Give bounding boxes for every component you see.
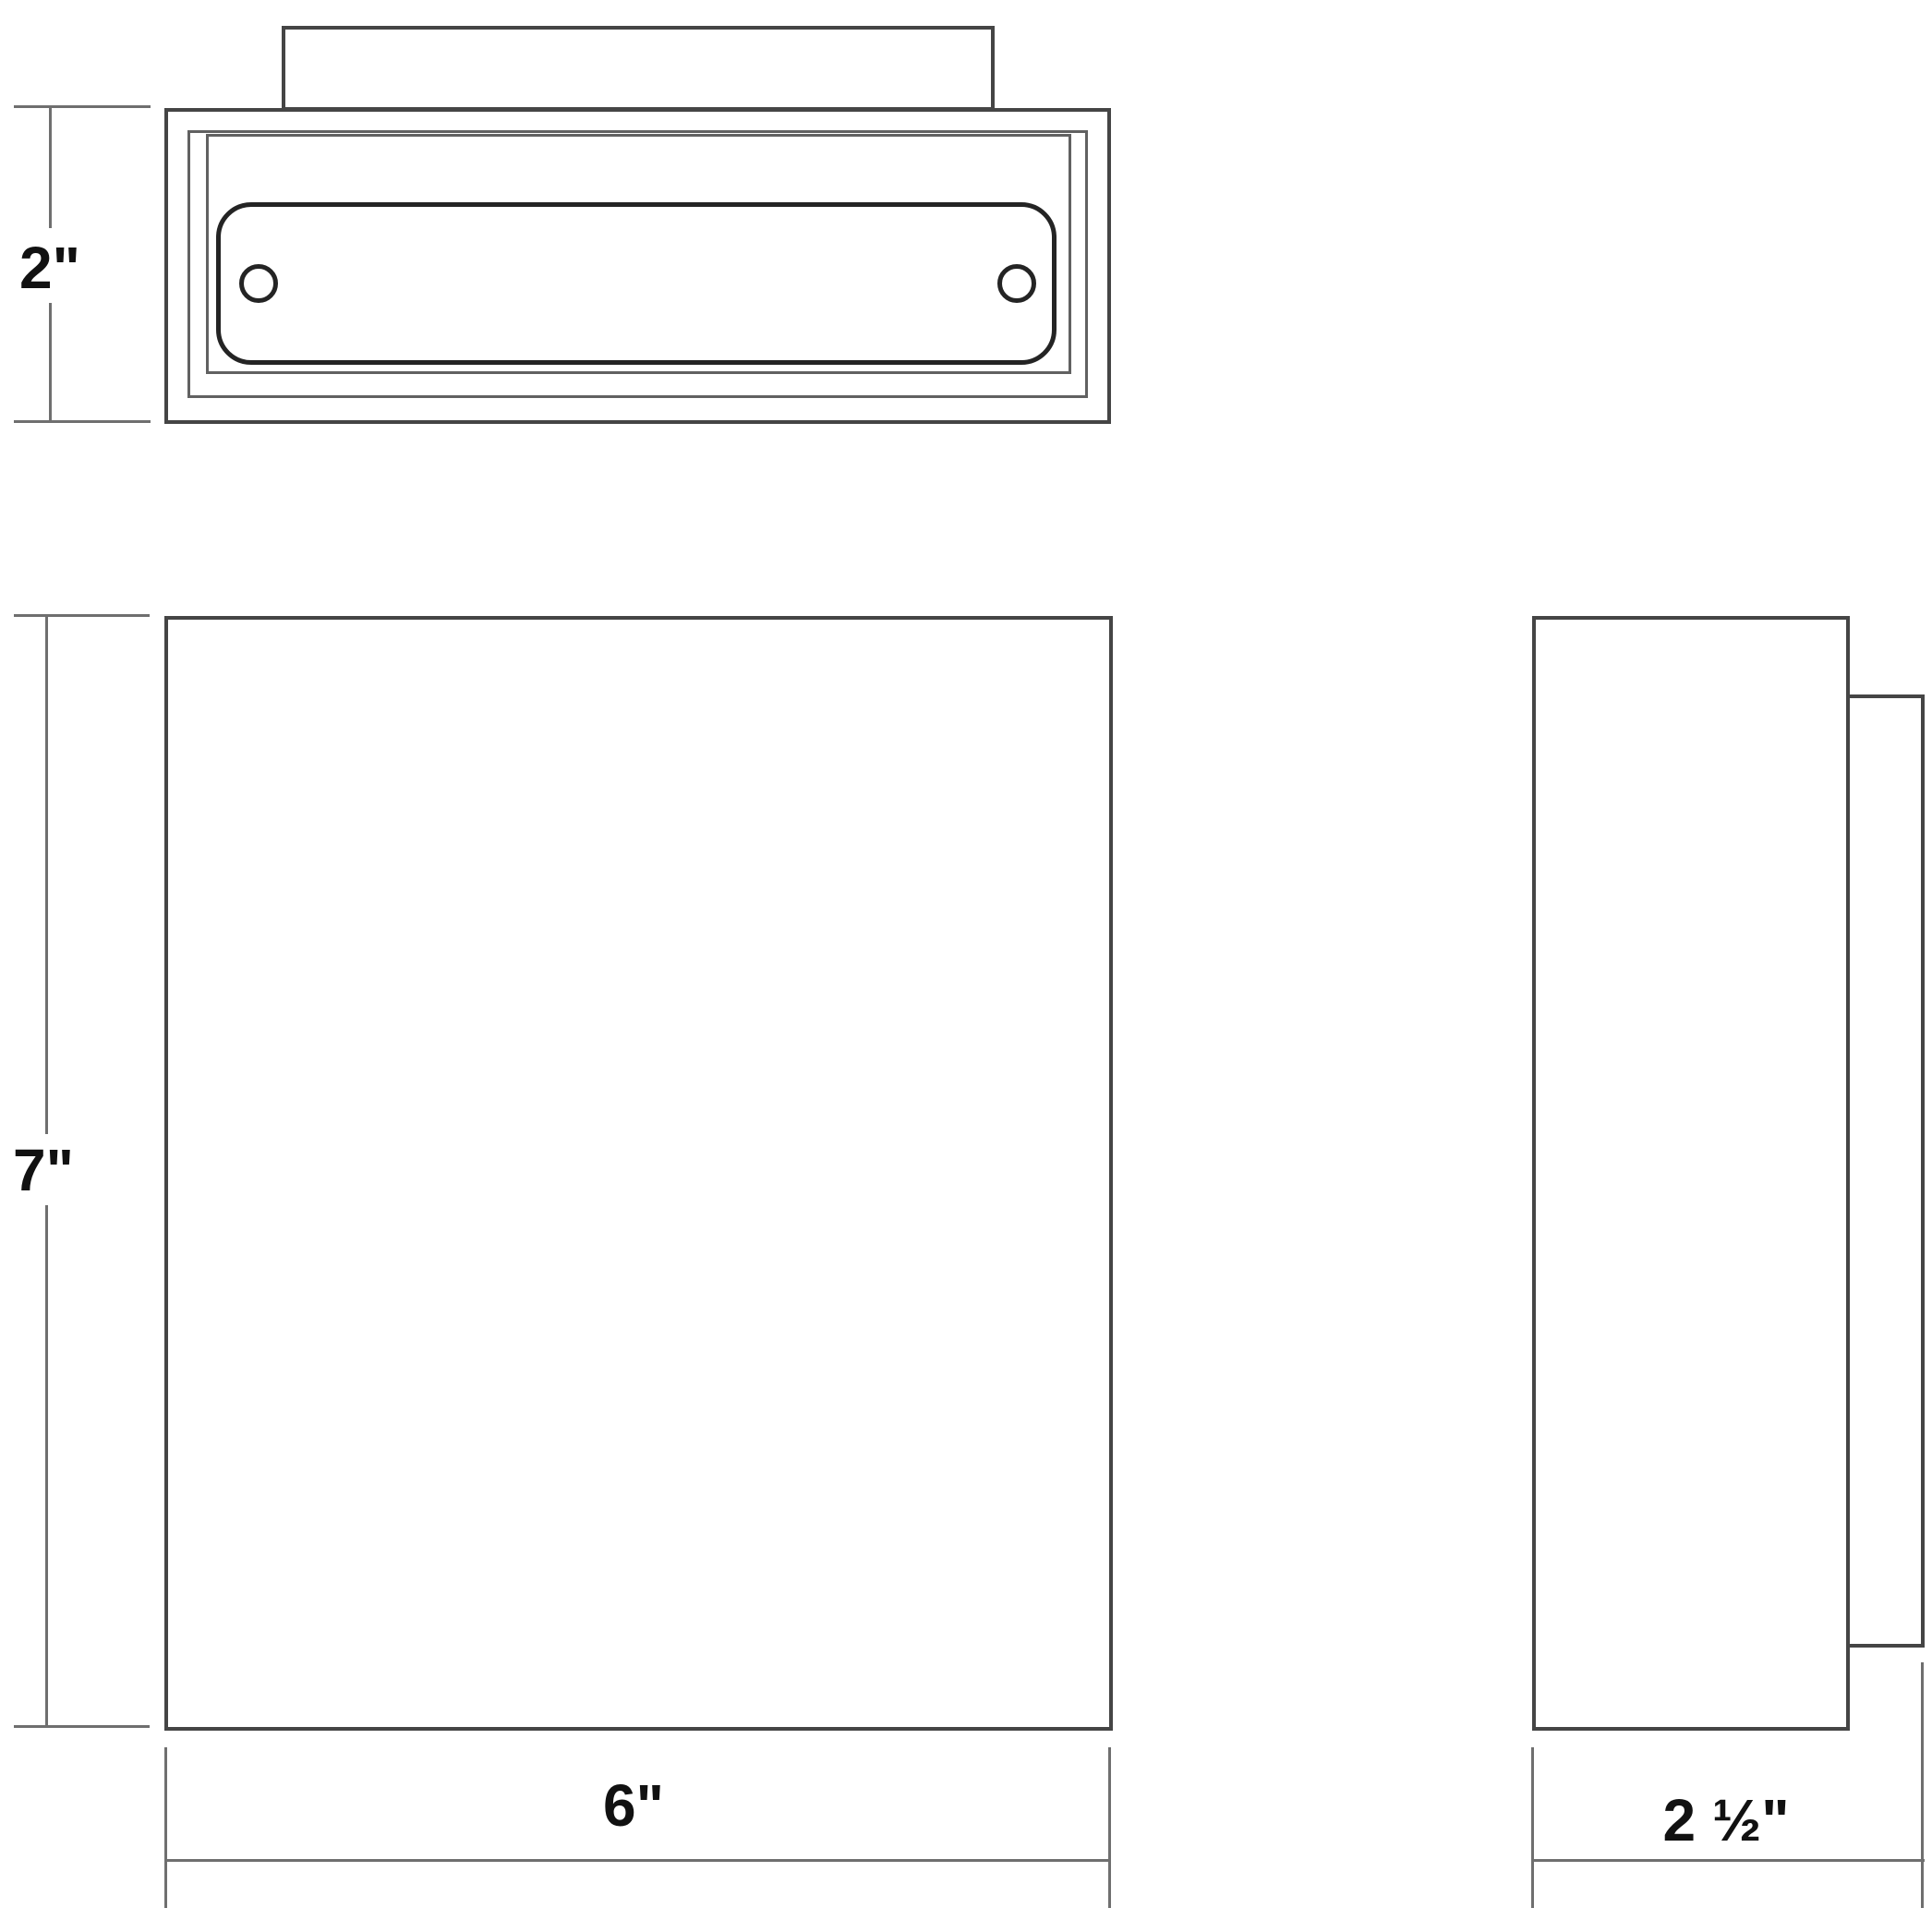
dim-7in-line-upper — [45, 617, 48, 1134]
top-view-screw-hole-right — [997, 264, 1036, 303]
dim-2in-label: 2" — [7, 237, 92, 298]
top-view-lens-plate — [216, 202, 1057, 365]
dim-2in-bottom-tick — [14, 420, 151, 423]
dim-2in-top-tick — [14, 105, 151, 108]
dim-2half-right-extension — [1921, 1662, 1924, 1908]
dim-2half-left-extension — [1531, 1747, 1534, 1908]
dim-2half-line — [1531, 1859, 1925, 1862]
top-view-backplate-tab — [282, 26, 995, 111]
dim-6in-left-extension — [164, 1747, 167, 1908]
dim-7in-top-tick — [14, 614, 150, 617]
dim-2in-line-lower — [49, 303, 52, 421]
dim-7in-line-lower — [45, 1205, 48, 1727]
dimension-drawing: 2" 7" 6" 2 ½" — [0, 0, 1932, 1932]
dim-6in-label: 6" — [574, 1775, 693, 1836]
dim-7in-bottom-tick — [14, 1725, 150, 1728]
dim-2in-line-upper — [49, 108, 52, 228]
top-view-screw-hole-left — [239, 264, 278, 303]
dim-7in-label: 7" — [0, 1140, 87, 1201]
dim-6in-right-extension — [1108, 1747, 1111, 1908]
side-view-backplate — [1846, 694, 1925, 1648]
dim-2half-label: 2 ½" — [1638, 1790, 1814, 1851]
side-view-housing — [1532, 616, 1850, 1731]
front-view-housing — [164, 616, 1113, 1731]
dim-6in-line — [164, 1859, 1111, 1862]
